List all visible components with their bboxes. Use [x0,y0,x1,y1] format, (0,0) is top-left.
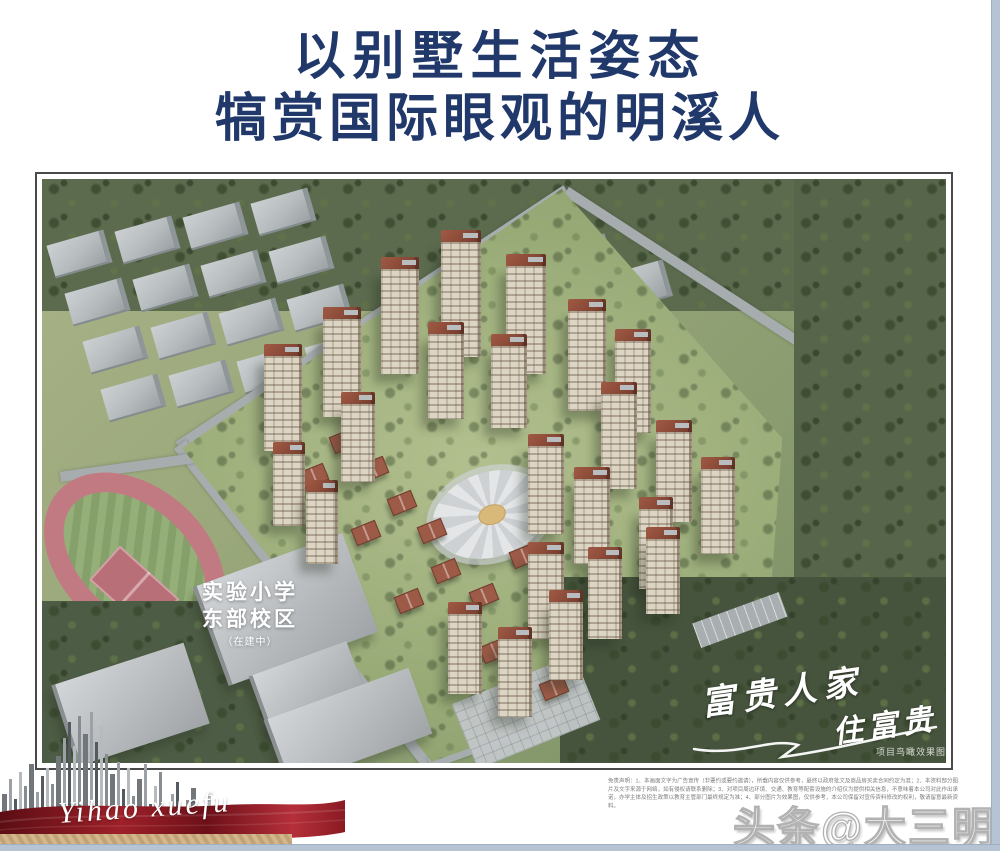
residential-tower [341,392,375,482]
tower-body [646,539,680,614]
tower-body [498,639,532,717]
tower-roof [574,467,610,479]
tower-body [528,446,564,534]
tower-body [428,334,464,419]
residential-tower [381,257,419,374]
residential-tower [264,344,302,451]
school-label-status: （在建中） [190,636,310,649]
school-label-line2: 东部校区 [190,606,310,633]
tower-roof [568,299,606,311]
tower-roof [381,257,419,269]
tower-roof [341,392,375,404]
aerial-render-frame: 实验小学 东部校区 （在建中） 富贵人家 住富贵 项目鸟瞰效果图 [35,172,953,770]
render-caption: 项目鸟瞰效果图 [876,745,946,758]
tower-roof [306,480,338,492]
toutiao-watermark: 头条@大三明 [733,794,996,851]
tower-body [549,602,583,680]
headline-line1: 以别墅生活姿态 [0,26,1000,88]
tower-roof [656,420,692,432]
tower-roof [639,497,673,509]
tower-roof [448,602,482,614]
residential-tower [528,434,564,534]
plaza-centerpiece [476,501,509,529]
tower-roof [264,344,302,356]
residential-tower [588,547,622,639]
page-edge-bottom [0,844,1000,851]
warehouse-building [150,312,216,361]
tower-roof [528,542,564,554]
tower-roof [428,322,464,334]
tower-body [264,356,302,451]
tower-roof [601,382,637,394]
residential-tower [498,627,532,717]
tower-body [701,469,735,554]
tower-roof [615,329,651,341]
poster-headline: 以别墅生活姿态 犒赏国际眼观的明溪人 [0,26,1000,151]
residential-tower [273,442,305,526]
warehouse-building [168,360,234,409]
tower-body [588,559,622,639]
tower-roof [506,254,546,266]
tower-roof [491,334,527,346]
warehouse-building [100,374,166,423]
residential-tower [428,322,464,419]
residential-tower [549,590,583,680]
poster-page: 以别墅生活姿态 犒赏国际眼观的明溪人 [0,0,1000,851]
tower-body [306,492,338,564]
school-label: 实验小学 东部校区 （在建中） [190,579,310,649]
tower-roof [498,627,532,639]
tower-roof [588,547,622,559]
tower-body [273,454,305,526]
warehouse-building [82,326,148,375]
brand-logo: Yihao xuefu [0,700,360,851]
tower-roof [323,307,361,319]
tower-body [381,269,419,374]
tower-body [341,404,375,482]
tower-roof [528,434,564,446]
residential-tower [448,602,482,694]
tower-roof [701,457,735,469]
tower-body [448,614,482,694]
residential-tower [491,334,527,428]
tower-roof [441,230,481,242]
page-edge-right [991,0,1000,851]
school-label-line1: 实验小学 [190,579,310,606]
headline-line2: 犒赏国际眼观的明溪人 [0,88,1000,150]
tower-roof [549,590,583,602]
tower-roof [646,527,680,539]
aerial-render-image: 实验小学 东部校区 （在建中） 富贵人家 住富贵 项目鸟瞰效果图 [42,179,946,763]
residential-tower [646,527,680,614]
residential-tower [701,457,735,554]
tower-body [491,346,527,428]
residential-tower [306,480,338,564]
tower-roof [273,442,305,454]
